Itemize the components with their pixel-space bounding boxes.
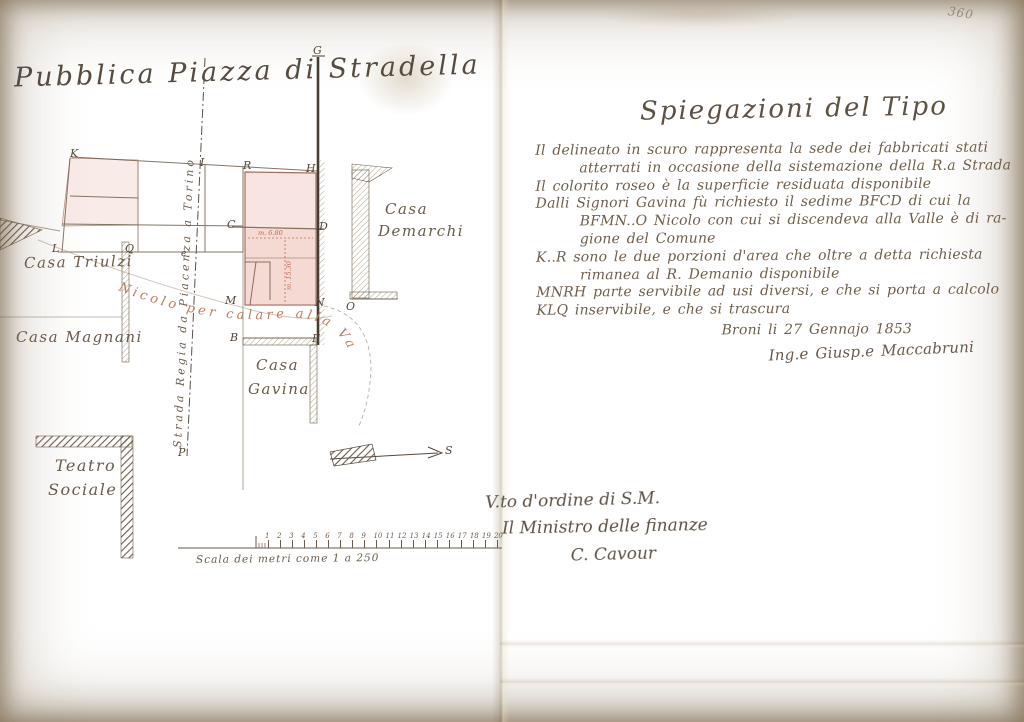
legend-line: atterrati in occasione della sistemazion…: [535, 157, 1021, 178]
map-letter-d: D: [319, 220, 328, 233]
map-letter-p: P: [178, 446, 185, 459]
crease: [500, 640, 1024, 648]
legend-line: MNRH parte servibile ad usi diversi, e c…: [536, 282, 1022, 303]
map-letter-e: e: [181, 249, 186, 259]
label-teatro-sociale: Teatro: [55, 456, 116, 475]
label-casa-triulzi: Casa Triulzi: [24, 252, 133, 272]
map-letter-k: K: [70, 147, 78, 160]
legend-line: BFMN..O Nicolo con cui si discendeva all…: [536, 210, 1022, 231]
scale-caption: Scala dei metri come 1 a 250: [196, 552, 380, 566]
map-letter-s: S: [445, 444, 453, 457]
paper-stain: [600, 2, 800, 28]
document-scan: 360: [0, 0, 1024, 722]
label-casa-gavina: Gavina: [248, 380, 310, 398]
label-casa-demarchi: Demarchi: [378, 222, 464, 240]
strada-regia: Strada Regia da Piacenza a Torino: [171, 58, 205, 456]
page-number: 360: [947, 4, 975, 22]
map-letter-i: I: [200, 156, 204, 169]
compass-arrow: [330, 444, 442, 466]
map-letter-f: F: [312, 332, 320, 345]
map-letter-o: O: [346, 300, 355, 313]
approval-minister: Il Ministro delle finanze: [502, 515, 708, 539]
crease: [500, 678, 1024, 686]
map-letter-l: L: [52, 242, 59, 255]
map-letter-b: B: [230, 331, 238, 344]
label-casa-magnani: Casa Magnani: [16, 328, 143, 346]
map-letter-g: G: [313, 44, 322, 57]
legend-line: KLQ inservibile, e che si trascura: [536, 299, 1022, 320]
map-letter-m: M: [225, 294, 236, 307]
measure-vertical: m. 15.30: [285, 261, 293, 290]
label-casa-demarchi: Casa: [385, 200, 428, 218]
legend-text: Il delineato in scuro rappresenta la sed…: [535, 139, 1023, 366]
measure-horizontal: m. 6.80: [258, 229, 283, 237]
map-letter-h: H: [306, 162, 316, 175]
label-teatro-sociale: Sociale: [48, 480, 117, 499]
map-letter-q: Q: [125, 242, 134, 255]
map-letter-n: N: [315, 296, 325, 309]
map-letter-c: C: [227, 218, 235, 231]
approval-block: V.to d'ordine di S.M. Il Ministro delle …: [485, 487, 709, 568]
legend-title: Spiegazioni del Tipo: [640, 91, 948, 126]
label-casa-gavina: Casa: [256, 356, 299, 374]
legend-line: K..R sono le due porzioni d'area che olt…: [536, 246, 1022, 267]
minister-signature: C. Cavour: [570, 542, 708, 566]
scale-ticks: 1234567891011121314151617181920: [268, 533, 502, 549]
engineer-signature: Ing.e Giusp.e Maccabruni: [537, 337, 1023, 375]
map-letter-r: R: [243, 159, 251, 172]
